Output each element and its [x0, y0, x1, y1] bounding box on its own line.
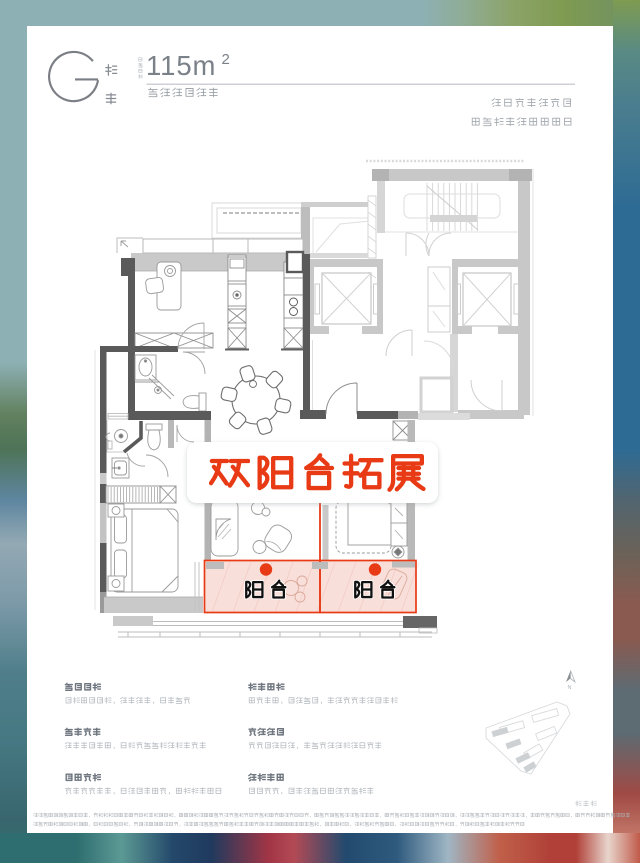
svg-text:115m: 115m [146, 50, 216, 81]
svg-text:N: N [568, 685, 572, 691]
svg-text:2: 2 [222, 51, 230, 68]
